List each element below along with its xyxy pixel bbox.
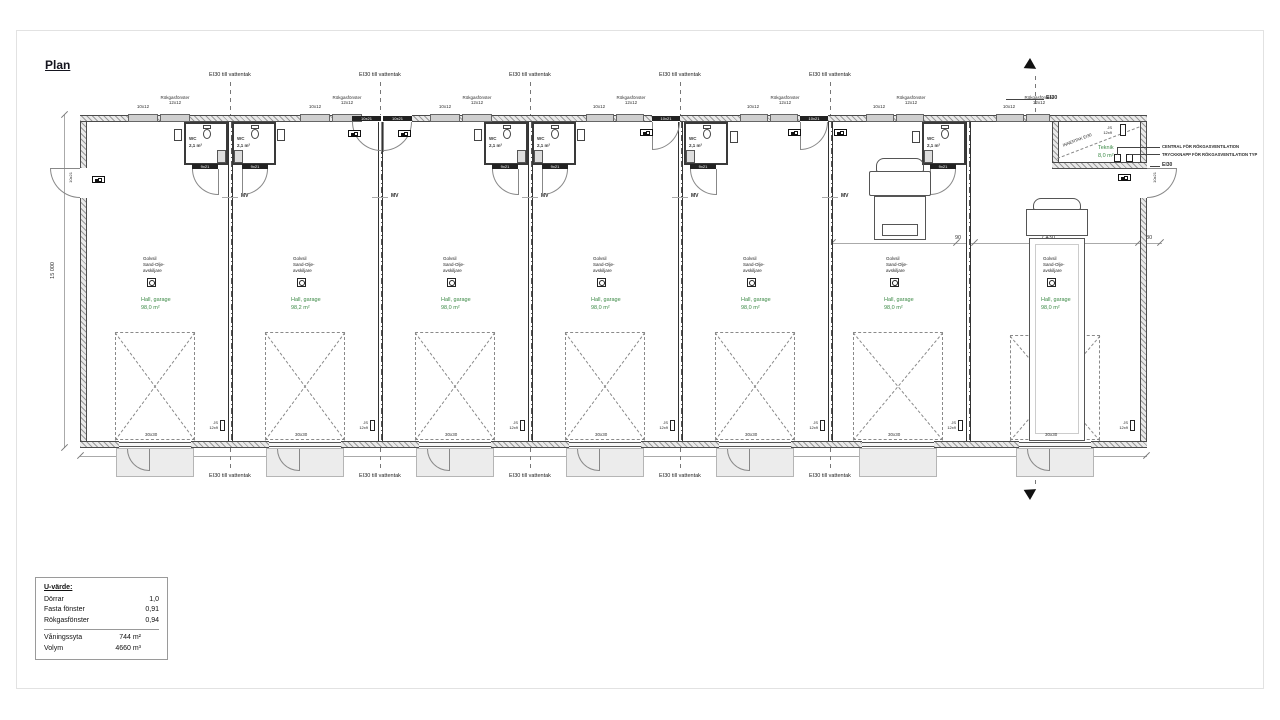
drain-line: avskiljare (1043, 268, 1065, 274)
room-area: 8,0 m² (1098, 152, 1114, 160)
ei30-guide (230, 82, 231, 115)
garage-door-label: 30x30 (1045, 432, 1057, 437)
garage-door-label: 30x30 (445, 432, 457, 437)
vehicle-zone (853, 332, 943, 440)
rokgas-window-label: Rökgasfönster12x12 (152, 95, 198, 105)
legend-label: Volym (44, 644, 63, 655)
vehicle-zone (415, 332, 495, 440)
panel-icon (834, 129, 847, 136)
panel-icon (788, 129, 801, 136)
panel-icon (1118, 174, 1131, 181)
drain-symbol-icon (447, 278, 456, 287)
room-name: Teknik (1098, 144, 1114, 152)
hall-area: 98,2 m² (291, 304, 321, 312)
garage-door (862, 442, 934, 447)
vehicle-zone (565, 332, 645, 440)
vehicle-zone (715, 332, 795, 440)
entry-door: 10x21 (383, 116, 412, 121)
js-window-label: JS12x9 (1098, 126, 1112, 136)
js-size: 12x9 (504, 426, 518, 431)
js-window-label: JS12x9 (204, 421, 218, 431)
basin-icon (474, 129, 482, 141)
teknik-wall-bottom (1052, 162, 1147, 169)
drain-line: avskiljare (886, 268, 908, 274)
drain-symbol-icon (147, 278, 156, 287)
drain-line: Sand-Olje- (743, 262, 765, 268)
basin-icon (277, 129, 285, 141)
mv-tick (822, 197, 838, 198)
legend-divider (44, 629, 159, 630)
hall-garage-label: Hall, garage98,0 m² (441, 296, 471, 313)
basin-icon (174, 129, 182, 141)
wc-label: WC (489, 136, 497, 141)
dim-bay6-wall: 90 (955, 235, 961, 241)
drain-line: Sand-Olje- (1043, 262, 1065, 268)
legend-row: Dörrar1,0 (44, 595, 159, 606)
exterior-wall-bottom (641, 441, 719, 448)
drain-line: Sand-Olje- (293, 262, 315, 268)
floor-drain-label: GolvsilSand-Olje-avskiljare (1043, 256, 1065, 274)
wc-label: WC (689, 136, 697, 141)
ei30-marker-right: EI30 (1162, 162, 1172, 168)
duct-icon (534, 150, 543, 163)
js-size: 12x9 (1098, 131, 1112, 136)
teknik-label: Teknik8,0 m² (1098, 144, 1114, 161)
ei30-guide (380, 448, 381, 471)
js-window-icon (520, 420, 525, 431)
ei30-guide (380, 82, 381, 115)
wc-area-label: 2,1 m² (927, 143, 940, 148)
wc-area-label: 2,1 m² (189, 143, 202, 148)
legend-label: Rökgasfönster (44, 616, 89, 627)
wc-label: WC (189, 136, 197, 141)
mv-label: MV (841, 193, 849, 199)
ei30-leader (1150, 166, 1160, 167)
floor-drain-label: GolvsilSand-Olje-avskiljare (743, 256, 765, 274)
exterior-wall-left (80, 198, 87, 441)
js-window-icon (220, 420, 225, 431)
garage-door-label: 30x30 (888, 432, 900, 437)
js-window-icon (958, 420, 963, 431)
legend-value: 744 m² (119, 633, 141, 644)
wc-area-label: 2,1 m² (537, 143, 550, 148)
drain-line: avskiljare (443, 268, 465, 274)
ei30-label-top: EI30 till vattentak (495, 72, 565, 78)
ei30-label-top: EI30 till vattentak (345, 72, 415, 78)
ei30-label-top: EI30 till vattentak (795, 72, 865, 78)
ei30-label-bottom: EI30 till vattentak (495, 473, 565, 479)
hall-area: 98,0 m² (884, 304, 914, 312)
drain-line: avskiljare (743, 268, 765, 274)
hall-name: Hall, garage (884, 296, 914, 304)
door-leaf (449, 449, 450, 471)
garage-door (1019, 442, 1091, 447)
legend-label: Fasta fönster (44, 605, 85, 616)
hall-area: 98,0 m² (141, 304, 171, 312)
floor-drain-label: GolvsilSand-Olje-avskiljare (293, 256, 315, 274)
js-window-icon (820, 420, 825, 431)
js-window-icon (370, 420, 375, 431)
drain-line: Sand-Olje- (593, 262, 615, 268)
leg-value: 0,94 (145, 616, 159, 627)
duct-icon (517, 150, 526, 163)
floor-drain-label: GolvsilSand-Olje-avskiljare (593, 256, 615, 274)
garage-door-label: 30x30 (745, 432, 757, 437)
toilet-icon (702, 125, 713, 140)
ei30-leader (1006, 99, 1044, 100)
ei30-label-bottom: EI30 till vattentak (345, 473, 415, 479)
mv-label: MV (691, 193, 699, 199)
callout-leader (1117, 147, 1160, 148)
js-window-icon (670, 420, 675, 431)
unit-divider-wall (828, 122, 833, 441)
wc-area-label: 2,1 m² (489, 143, 502, 148)
window-bar (866, 114, 894, 122)
garage-door (419, 442, 491, 447)
hall-garage-label: Hall, garage98,2 m² (291, 296, 321, 313)
exterior-wall-bottom (80, 441, 119, 448)
door-leaf (1049, 449, 1050, 471)
ei30-label-bottom: EI30 till vattentak (195, 473, 265, 479)
garage-door-label: 30x30 (145, 432, 157, 437)
drain-symbol-icon (1047, 278, 1056, 287)
drain-line: Sand-Olje- (886, 262, 908, 268)
dim-building-height: 15 000 (50, 262, 56, 279)
ei30-guide (680, 82, 681, 115)
unit-divider-wall (966, 122, 971, 441)
door-leaf (381, 122, 382, 152)
floor-drain-label: GolvsilSand-Olje-avskiljare (443, 256, 465, 274)
js-size: 12x9 (942, 426, 956, 431)
js-size: 12x9 (654, 426, 668, 431)
ei30-guide (230, 448, 231, 471)
hall-garage-label: Hall, garage98,0 m² (141, 296, 171, 313)
entry-door: 10x21 (352, 116, 381, 121)
ei30-guide (830, 82, 831, 115)
duct-icon (217, 150, 226, 163)
wc-label: WC (927, 136, 935, 141)
rokgas-window-label: Rökgasfönster12x12 (888, 95, 934, 105)
exterior-wall-bottom (491, 441, 569, 448)
window-bar (430, 114, 460, 122)
vehicle-zone (115, 332, 195, 440)
hall-area: 98,0 m² (1041, 304, 1071, 312)
js-window-label: JS12x9 (654, 421, 668, 431)
unit-divider-wall (678, 122, 683, 441)
legend-row: Våningssyta744 m² (44, 633, 159, 644)
toilet-icon (250, 125, 261, 140)
ei30-label-top: EI30 till vattentak (195, 72, 265, 78)
hall-garage-label: Hall, garage98,0 m² (884, 296, 914, 313)
js-window-label: JS12x9 (504, 421, 518, 431)
hall-name: Hall, garage (1041, 296, 1071, 304)
exterior-wall-bottom (341, 441, 419, 448)
door-leaf (749, 449, 750, 471)
panel-icon (640, 129, 653, 136)
js-size: 12x9 (354, 426, 368, 431)
garage-door (119, 442, 191, 447)
legend-value: 0,91 (145, 605, 159, 616)
rokgas-size: 12x12 (762, 100, 808, 105)
truck-icon (869, 158, 931, 242)
exterior-wall-bottom (934, 441, 1019, 448)
window-bar (128, 114, 158, 122)
door-leaf (518, 169, 519, 195)
mv-tick (522, 197, 538, 198)
js-window-label: JS12x9 (1114, 421, 1128, 431)
vent-central-icon (1114, 154, 1121, 162)
mv-tick (372, 197, 388, 198)
legend-row: Volym4660 m³ (44, 644, 159, 655)
exterior-wall-right (1140, 198, 1147, 441)
garage-door (719, 442, 791, 447)
floor-drain-label: GolvsilSand-Olje-avskiljare (886, 256, 908, 274)
hall-name: Hall, garage (591, 296, 621, 304)
js-size: 12x9 (1114, 426, 1128, 431)
ei30-guide (680, 448, 681, 471)
floor-drain-label: GolvsilSand-Olje-avskiljare (143, 256, 165, 274)
hall-garage-label: Hall, garage98,0 m² (591, 296, 621, 313)
vehicle-zone (265, 332, 345, 440)
window-bar (1026, 114, 1050, 122)
ei30-guide (530, 448, 531, 471)
wc-area-label: 2,1 m² (689, 143, 702, 148)
ei30-label-bottom: EI30 till vattentak (645, 473, 715, 479)
basin-icon (577, 129, 585, 141)
wc-label: WC (537, 136, 545, 141)
dim-line-right-bays (832, 243, 1162, 244)
wc-label: WC (237, 136, 245, 141)
entry-door: 10x21 (800, 116, 828, 121)
panel-icon (92, 176, 105, 183)
toilet-icon (202, 125, 213, 140)
drain-line: Sand-Olje- (443, 262, 465, 268)
legend-value: 4660 m³ (115, 644, 141, 655)
rokgas-size: 12x12 (324, 100, 370, 105)
toilet-icon (502, 125, 513, 140)
drain-symbol-icon (297, 278, 306, 287)
hall-area: 98,0 m² (591, 304, 621, 312)
ei30-label-top: EI30 till vattentak (645, 72, 715, 78)
door-leaf (149, 449, 150, 471)
duct-icon (234, 150, 243, 163)
js-window-label: JS12x9 (354, 421, 368, 431)
window-bar (896, 114, 924, 122)
apron-slab (859, 448, 937, 477)
drain-line: avskiljare (593, 268, 615, 274)
exterior-wall-bottom (791, 441, 862, 448)
hall-garage-label: Hall, garage98,0 m² (1041, 296, 1071, 313)
ei30-guide (530, 82, 531, 115)
exterior-wall-left (80, 122, 87, 168)
ei30-guide (830, 448, 831, 471)
legend-title: U-värde: (44, 583, 159, 594)
drain-line: avskiljare (293, 268, 315, 274)
callout-leader (1117, 147, 1118, 155)
garage-door (269, 442, 341, 447)
window-bar (462, 114, 492, 122)
drain-symbol-icon (747, 278, 756, 287)
exterior-wall-bottom (191, 441, 269, 448)
js-size: 12x9 (804, 426, 818, 431)
basin-icon (730, 131, 738, 143)
panel-icon (398, 130, 411, 137)
hall-name: Hall, garage (141, 296, 171, 304)
toilet-icon (940, 125, 951, 140)
js-window-label: JS12x9 (942, 421, 956, 431)
hall-name: Hall, garage (741, 296, 771, 304)
legend-value: 1,0 (149, 595, 159, 606)
callout-central: CENTRAL FÖR RÖKGASVENTILATION (1162, 144, 1239, 149)
entry-door-label: 10x21 (1152, 172, 1157, 183)
mv-tick (672, 197, 688, 198)
mv-label: MV (391, 193, 399, 199)
window-bar (160, 114, 190, 122)
hall-area: 98,0 m² (741, 304, 771, 312)
wc-area-label: 2,1 m² (237, 143, 250, 148)
callout-leader (1129, 154, 1160, 155)
js-size: 12x9 (204, 426, 218, 431)
rokgas-size: 12x12 (608, 100, 654, 105)
window-bar (586, 114, 614, 122)
hall-name: Hall, garage (291, 296, 321, 304)
exterior-wall-bottom (1091, 441, 1147, 448)
door-leaf (716, 169, 717, 195)
door-leaf (599, 449, 600, 471)
garage-door (569, 442, 641, 447)
rokgas-window-label: Rökgasfönster12x12 (454, 95, 500, 105)
legend-label: Våningssyta (44, 633, 82, 644)
rokgas-window-label: Rökgasfönster12x12 (608, 95, 654, 105)
toilet-icon (550, 125, 561, 140)
garage-door-label: 30x30 (595, 432, 607, 437)
hall-area: 98,0 m² (441, 304, 471, 312)
rokgas-size: 12x12 (888, 100, 934, 105)
unit-divider-wall (228, 122, 233, 441)
unit-divider-wall (528, 122, 533, 441)
drain-symbol-icon (597, 278, 606, 287)
js-window-icon (1130, 420, 1135, 431)
ei30-label-bottom: EI30 till vattentak (795, 473, 865, 479)
door-leaf (218, 169, 219, 195)
drain-symbol-icon (890, 278, 899, 287)
legend-label: Dörrar (44, 595, 64, 606)
callout-button: TRYCKKNAPP FÖR RÖKGASVENTILATION TYP (1162, 152, 1257, 157)
truck-icon (1026, 198, 1088, 443)
duct-icon (686, 150, 695, 163)
dim-line-left (64, 115, 65, 448)
garage-door-label: 30x30 (295, 432, 307, 437)
window-bar (616, 114, 644, 122)
entry-door-label: 10x21 (68, 172, 73, 183)
page-title: Plan (45, 58, 70, 72)
js-window-icon (1120, 124, 1126, 136)
window-bar (740, 114, 768, 122)
drain-line: Sand-Olje- (143, 262, 165, 268)
rokgas-size: 12x12 (454, 100, 500, 105)
door-leaf (299, 449, 300, 471)
js-window-label: JS12x9 (804, 421, 818, 431)
window-bar (300, 114, 330, 122)
drawing-sheet: Plan 15 000 49 310 6 830 90 7 430 180 EI… (0, 0, 1280, 720)
panel-icon (348, 130, 361, 137)
rokgas-window-label: Rökgasfönster12x12 (324, 95, 370, 105)
rokgas-size: 12x12 (152, 100, 198, 105)
drain-line: avskiljare (143, 268, 165, 274)
unit-divider-wall (378, 122, 383, 441)
entry-door: 10x21 (652, 116, 680, 121)
hall-name: Hall, garage (441, 296, 471, 304)
window-bar (996, 114, 1024, 122)
mv-tick (222, 197, 238, 198)
basin-icon (912, 131, 920, 143)
window-bar (770, 114, 798, 122)
ei30-marker-top: EI30 (1046, 95, 1057, 101)
legend-box: U-värde: Dörrar1,0 Fasta fönster0,91 Rök… (35, 577, 168, 660)
legend-row: Rökgasfönster0,94 (44, 616, 159, 627)
legend-row: Fasta fönster0,91 (44, 605, 159, 616)
hall-garage-label: Hall, garage98,0 m² (741, 296, 771, 313)
rokgas-window-label: Rökgasfönster12x12 (762, 95, 808, 105)
vent-button-icon (1126, 154, 1133, 162)
